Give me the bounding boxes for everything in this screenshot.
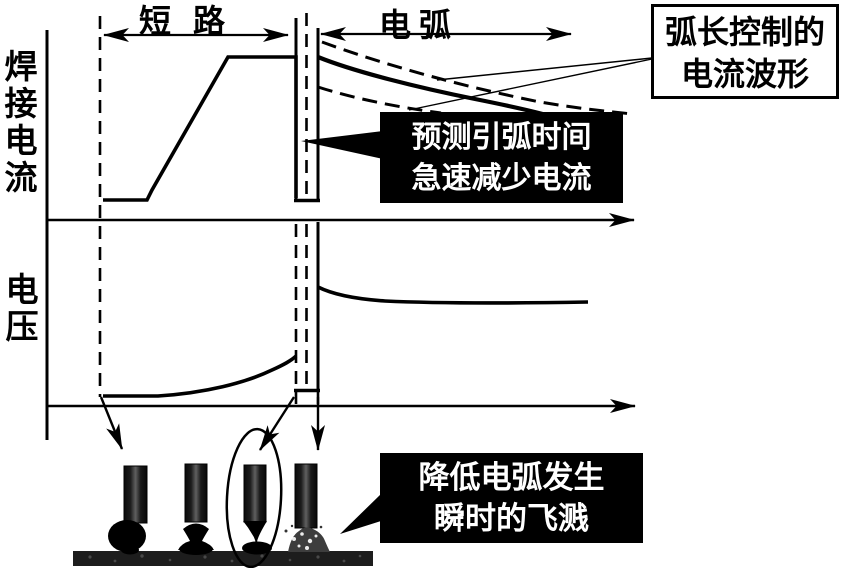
current-waveform-arc-lower-dashed [318, 87, 441, 113]
annotation-reduce-spatter: 降低电弧发生 瞬时的飞溅 [380, 453, 643, 543]
current-waveform-short-circuit [103, 57, 296, 200]
voltage-waveform-short-circuit [103, 356, 296, 396]
welding-waveform-diagram: 焊接电流 电压 短路 电弧 弧长控制的 电流波形 预测引弧时间 急速减少电流 降… [0, 0, 842, 568]
arc-ignition-band-current [294, 13, 320, 202]
electrode-1 [108, 466, 147, 555]
current-axis-label: 焊接电流 [2, 50, 40, 198]
spatter-box-wedge-pointer [340, 494, 381, 534]
annotation-predict-arc-time: 预测引弧时间 急速减少电流 [380, 112, 623, 203]
spatter-line-1: 降低电弧发生 [380, 457, 643, 498]
arc-ignition-band-voltage [294, 222, 320, 404]
phase-label-arc: 电弧 [379, 0, 459, 46]
electrode-3 [242, 465, 272, 555]
callout-line-1: 弧长控制的 [654, 11, 836, 53]
spatter-line-2: 瞬时的飞溅 [380, 498, 643, 539]
predict-box-wedge-pointer [301, 131, 383, 159]
callout-pointer-line-lower [409, 59, 652, 110]
electrode-2 [178, 464, 214, 555]
callout-line-2: 电流波形 [654, 53, 836, 95]
voltage-axis-label: 电压 [3, 273, 41, 347]
callout-pointer-line-upper [437, 58, 652, 80]
base-plate [73, 551, 373, 566]
electrode-4 [285, 464, 331, 552]
current-waveform-arc-upper-dashed [322, 42, 633, 114]
predict-line-2: 急速减少电流 [380, 158, 623, 199]
predict-line-1: 预测引弧时间 [380, 117, 623, 158]
callout-arc-length-control: 弧长控制的 电流波形 [651, 4, 839, 99]
phase-label-short-circuit: 短路 [139, 0, 247, 42]
current-waveform-arc-solid [318, 57, 550, 116]
droplet-transfer-sketch [73, 428, 373, 568]
voltage-waveform-arc [318, 287, 588, 303]
